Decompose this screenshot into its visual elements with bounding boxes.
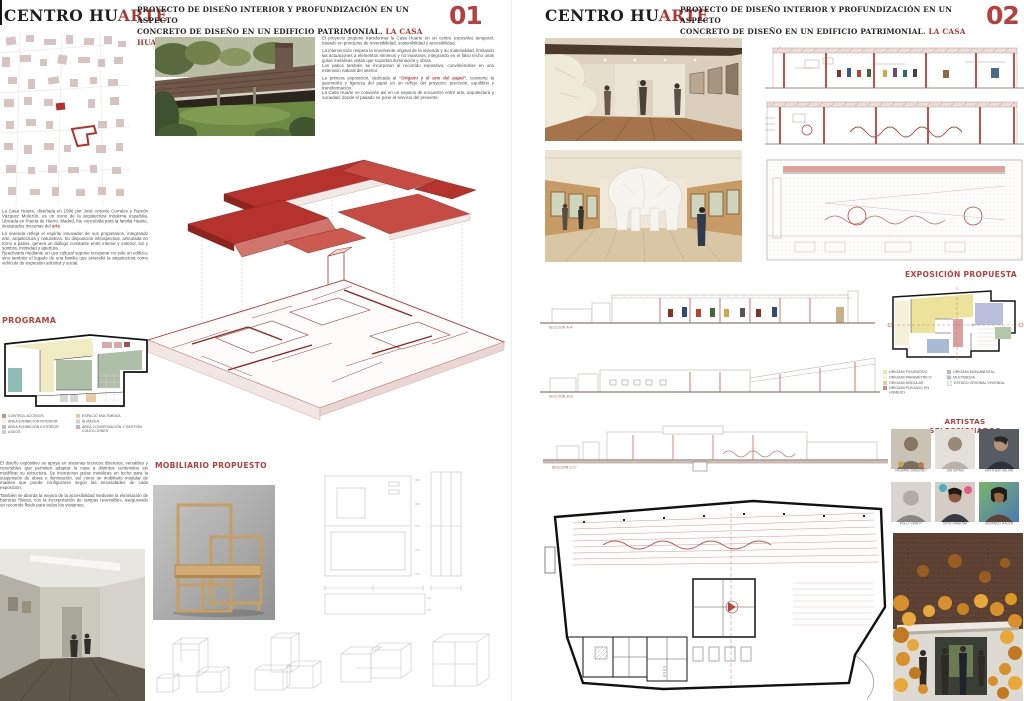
programa-legend-left: CONTROL ACCESOS ÁREA EXHIBICIÓN INTERIOR… — [2, 414, 74, 452]
legend-swatch — [883, 381, 887, 385]
subtitle-line2: CONCRETO DE DISEÑO EN UN EDIFICIO PATRIM… — [137, 27, 385, 36]
paragraph: También se aborda la mejora de la accesi… — [0, 493, 148, 508]
programa-heading: PROGRAMA — [2, 316, 56, 325]
legend-item: ÁREA EXHIBICIÓN EXTERIOR — [2, 425, 74, 429]
panel-number: 01 — [449, 1, 482, 30]
artist-photo — [935, 429, 975, 469]
legend-swatch — [883, 386, 887, 390]
artist-card: POLLY VERITY — [891, 482, 931, 530]
history-text: La Casa Huarte, diseñada en 1966 por Jos… — [2, 209, 148, 315]
title-black: CENTRO HU — [545, 6, 659, 25]
subtitle-line2: CONCRETO DE DISEÑO EN UN EDIFICIO PATRIM… — [680, 27, 928, 36]
legend-swatch — [2, 419, 6, 423]
artist-card: GERARDO HACER — [979, 482, 1019, 530]
section-c-label: SECCIÓN C-C' — [552, 466, 612, 474]
panel-02: CENTRO HUARTE PROYECTO DE DISEÑO INTERIO… — [512, 0, 1024, 701]
building-section-b — [540, 348, 880, 396]
paragraph: La Casa Huarte se convierte así en un es… — [322, 91, 494, 101]
artist-name: SIPHO MABONA — [935, 522, 975, 530]
floor-plan-drawing — [543, 487, 893, 701]
exposicion-heading: EXPOSICIÓN PROPUESTA — [900, 270, 1022, 279]
programa-plan — [2, 330, 150, 412]
title-edge-bar — [0, 0, 2, 25]
legend-item: ORIGAMI PARAMÉTRICO — [883, 375, 945, 379]
legend-label: ÁREA CONSERVACIÓN Y GESTIÓN COLECCIONES — [82, 425, 152, 433]
artist-photo — [891, 429, 931, 469]
artist-photo — [979, 429, 1019, 469]
artist-card: JUN MITANI — [935, 429, 975, 477]
legend-label: ESPACIO MULTIMEDIA — [82, 414, 121, 418]
section-a-label: SECCIÓN A-A' — [549, 326, 609, 334]
legend-item: ESPACIO MULTIMEDIA — [76, 414, 152, 418]
legend-label: ORIGAMI PARAMÉTRICO — [889, 375, 932, 379]
legend-item: ORIGAMI MODULAR — [883, 381, 945, 385]
legend-swatch — [76, 419, 80, 423]
intro-text: El proyecto propone transformar la Casa … — [322, 36, 494, 148]
legend-label: ESTADO ORIGINAL VIVIENDA — [954, 381, 1004, 385]
legend-item: ORIGAMI MONUMENTAL — [947, 370, 1023, 374]
legend-swatch — [2, 430, 6, 434]
legend-item: ORIGAMI FIGURATIVO — [883, 370, 945, 374]
legend-item: ALMACÉN — [76, 419, 152, 423]
legend-swatch — [2, 414, 6, 418]
legend-label: ORIGAMI FIGURATIVO — [889, 370, 927, 374]
section-b-label: SECCIÓN B-B' — [549, 395, 609, 403]
legend-label: ORIGAMI MODULAR — [889, 381, 924, 385]
legend-label: ÁREA EXHIBICIÓN EXTERIOR — [8, 425, 59, 429]
exhibition-design-text: El diseño expositivo se apoya en sistema… — [0, 461, 148, 547]
artist-name: GERARDO HACER — [979, 522, 1019, 530]
panel-01: CENTRO HUARTE PROYECTO DE DISEÑO INTERIO… — [0, 0, 512, 701]
legend-label: ALMACÉN — [82, 419, 99, 423]
artist-name: RICHARD SWEENEY — [891, 469, 931, 477]
legend-swatch — [76, 425, 80, 429]
legend-item: ORIGAMI PLEGADO EN HÚMEDO — [883, 386, 945, 394]
paragraph: La intervención respeta la envolvente or… — [322, 49, 494, 64]
artist-name: JUN MITANI — [935, 469, 975, 477]
building-section-a — [540, 283, 875, 327]
legend-item: ESTADO ORIGINAL VIVIENDA — [947, 381, 1023, 386]
exposicion-legend-left: ORIGAMI FIGURATIVO ORIGAMI PARAMÉTRICO O… — [883, 370, 945, 410]
legend-item: MULTIMEDIA — [947, 375, 1023, 379]
site-plan-map — [0, 33, 130, 205]
legend-swatch — [76, 414, 80, 418]
casa-huarte-footprint-outline — [72, 126, 96, 146]
legend-item: ÁREA EXHIBICIÓN INTERIOR — [2, 419, 74, 423]
title-black: CENTRO HU — [4, 6, 118, 25]
paragraph: Los patios también se incorporan al reco… — [322, 63, 494, 73]
panel-number: 02 — [986, 1, 1019, 30]
legend-label: ASEOS — [8, 430, 20, 434]
exposicion-plan — [887, 287, 1024, 361]
paragraph: La Casa Huarte, diseñada en 1966 por Jos… — [2, 209, 148, 229]
artist-name: MATTHEW SHLIAN — [979, 469, 1019, 477]
artist-card: RICHARD SWEENEY — [891, 429, 931, 477]
gallery-interior-photo — [0, 549, 145, 701]
highlight-arte: arte — [52, 223, 60, 228]
paragraph: La primera exposición, dedicada al “Orig… — [322, 76, 494, 91]
casa-huarte-photo — [155, 37, 315, 136]
artist-photo — [935, 482, 975, 522]
furniture-photo — [153, 485, 275, 620]
furniture-wireframe-variants — [155, 626, 505, 700]
paragraph: El diseño expositivo se apoya en sistema… — [0, 461, 148, 491]
axonometric-drawing — [132, 140, 512, 462]
wall-section-drawings — [765, 40, 1024, 152]
legend-label: ÁREA EXHIBICIÓN INTERIOR — [8, 419, 58, 423]
artist-card: SIPHO MABONA — [935, 482, 975, 530]
artist-photo — [891, 482, 931, 522]
legend-swatch — [883, 370, 887, 374]
gallery-render-corridor — [545, 38, 742, 141]
legend-swatch — [947, 370, 951, 374]
furniture-technical-drawing — [323, 470, 463, 620]
legend-label: ORIGAMI MONUMENTAL — [953, 370, 995, 374]
legend-swatch — [883, 375, 887, 379]
casa-huarte-footprint-solid — [56, 102, 66, 110]
legend-item: CONTROL ACCESOS — [2, 414, 74, 418]
artist-card: MATTHEW SHLIAN — [979, 429, 1019, 477]
subtitle-line1: PROYECTO DE DISEÑO INTERIOR Y PROFUNDIZA… — [680, 5, 952, 25]
exposicion-legend-right: ORIGAMI MONUMENTAL MULTIMEDIA ESTADO ORI… — [947, 370, 1023, 410]
legend-label: CONTROL ACCESOS — [8, 414, 44, 418]
artistas-grid: RICHARD SWEENEY JUN MITANI MATTHEW SHLIA… — [891, 429, 1019, 530]
subtitle-line1: PROYECTO DE DISEÑO INTERIOR Y PROFUNDIZA… — [137, 5, 409, 25]
legend-swatch — [947, 375, 951, 379]
artist-photo — [979, 482, 1019, 522]
legend-swatch — [947, 381, 952, 386]
programa-legend-right: ESPACIO MULTIMEDIA ALMACÉN ÁREA CONSERVA… — [76, 414, 152, 452]
paragraph: Reactivarla mediante un uso cultural sup… — [2, 251, 148, 266]
legend-label: ORIGAMI PLEGADO EN HÚMEDO — [889, 386, 945, 394]
legend-item: ASEOS — [2, 430, 74, 434]
gallery-render-elephant — [545, 150, 742, 262]
legend-item: ÁREA CONSERVACIÓN Y GESTIÓN COLECCIONES — [76, 425, 152, 433]
mobiliario-heading: MOBILIARIO PROPUESTO — [155, 461, 267, 470]
paragraph: El proyecto propone transformar la Casa … — [322, 36, 494, 46]
paragraph: La vivienda refleja el espíritu innovado… — [2, 231, 148, 251]
legend-label: MULTIMEDIA — [953, 375, 975, 379]
artist-name: POLLY VERITY — [891, 522, 931, 530]
legend-swatch — [2, 425, 6, 429]
entrance-autumn-photo — [893, 533, 1023, 701]
presentation-board: CENTRO HUARTE PROYECTO DE DISEÑO INTERIO… — [0, 0, 1024, 701]
ceiling-plan-drawing — [765, 158, 1024, 262]
